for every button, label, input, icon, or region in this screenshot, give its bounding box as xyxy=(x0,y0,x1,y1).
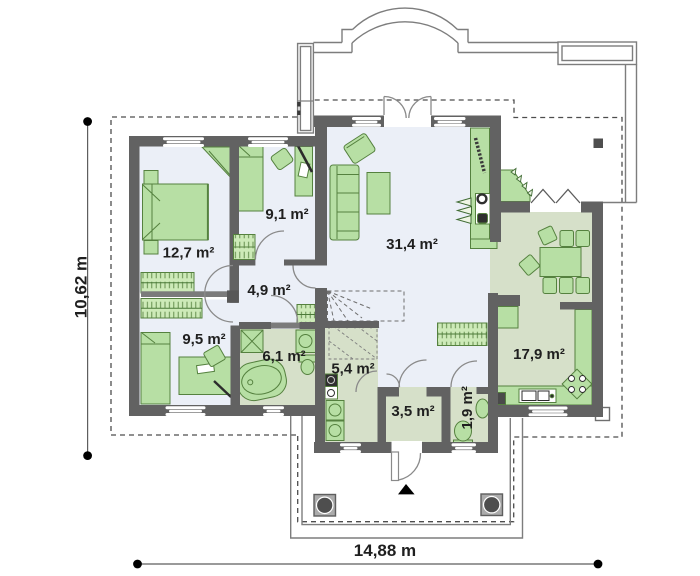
svg-text:3,5 m²: 3,5 m² xyxy=(391,403,434,420)
svg-text:5,4 m²: 5,4 m² xyxy=(331,361,374,378)
svg-text:31,4 m²: 31,4 m² xyxy=(386,236,438,253)
svg-text:4,9 m²: 4,9 m² xyxy=(247,282,290,299)
svg-text:12,7 m²: 12,7 m² xyxy=(163,245,215,262)
svg-text:9,5 m²: 9,5 m² xyxy=(182,331,225,348)
svg-text:10,62 m: 10,62 m xyxy=(71,256,90,318)
svg-text:14,88 m: 14,88 m xyxy=(354,541,416,560)
svg-text:9,1 m²: 9,1 m² xyxy=(265,206,308,223)
svg-text:6,1 m²: 6,1 m² xyxy=(262,348,305,365)
svg-text:1,9 m²: 1,9 m² xyxy=(459,386,476,429)
svg-text:17,9 m²: 17,9 m² xyxy=(513,346,565,363)
